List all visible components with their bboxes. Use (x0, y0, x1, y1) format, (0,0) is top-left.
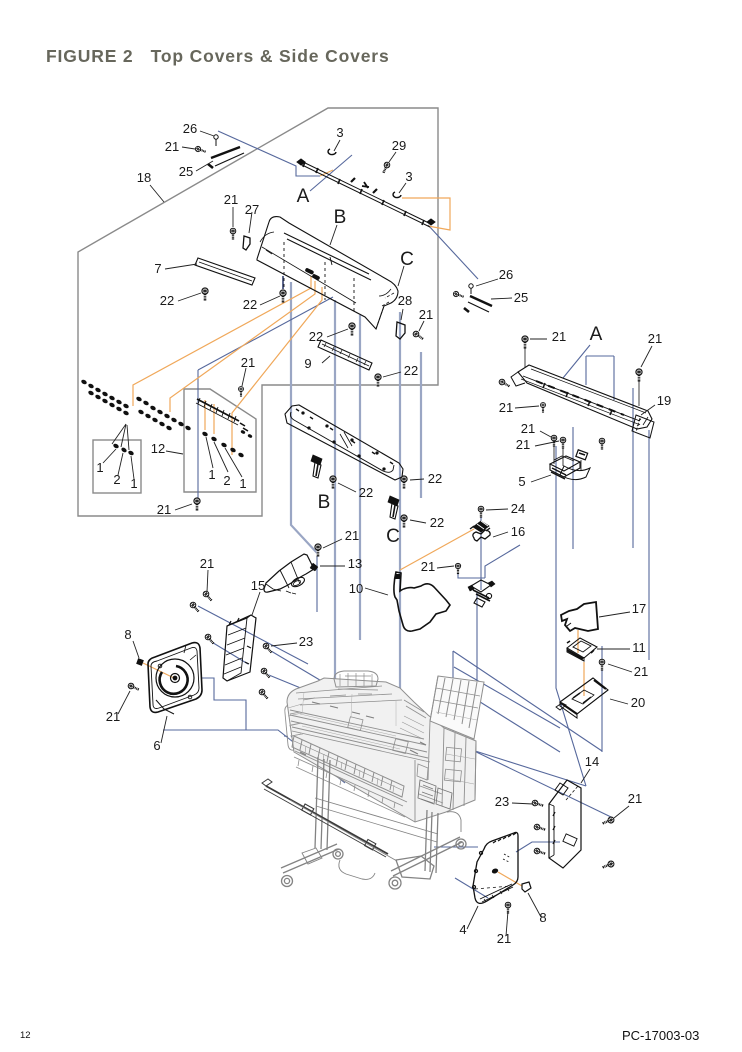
svg-text:2: 2 (223, 473, 230, 488)
svg-text:23: 23 (299, 634, 313, 649)
svg-text:A: A (590, 324, 603, 345)
svg-text:3: 3 (336, 125, 343, 140)
svg-text:21: 21 (224, 192, 238, 207)
svg-text:29: 29 (392, 138, 406, 153)
svg-text:9: 9 (304, 356, 311, 371)
svg-text:21: 21 (165, 139, 179, 154)
svg-text:24: 24 (511, 501, 525, 516)
svg-text:1: 1 (239, 476, 246, 491)
svg-text:17: 17 (632, 601, 646, 616)
svg-text:21: 21 (521, 421, 535, 436)
svg-text:18: 18 (137, 170, 151, 185)
svg-text:1: 1 (130, 476, 137, 491)
svg-text:21: 21 (345, 528, 359, 543)
svg-text:20: 20 (631, 695, 645, 710)
svg-text:13: 13 (348, 556, 362, 571)
svg-text:B: B (334, 207, 347, 228)
svg-text:25: 25 (179, 164, 193, 179)
svg-text:21: 21 (200, 556, 214, 571)
svg-text:22: 22 (428, 471, 442, 486)
svg-text:6: 6 (153, 738, 160, 753)
svg-text:2: 2 (113, 472, 120, 487)
svg-text:10: 10 (349, 581, 363, 596)
svg-text:A: A (297, 186, 310, 207)
svg-text:21: 21 (552, 329, 566, 344)
svg-text:1: 1 (208, 467, 215, 482)
svg-text:21: 21 (628, 791, 642, 806)
svg-text:8: 8 (539, 910, 546, 925)
svg-text:5: 5 (518, 474, 525, 489)
svg-text:C: C (386, 526, 400, 547)
svg-text:21: 21 (516, 437, 530, 452)
svg-text:22: 22 (309, 329, 323, 344)
svg-text:7: 7 (154, 261, 161, 276)
svg-text:12: 12 (151, 441, 165, 456)
svg-text:21: 21 (497, 931, 511, 946)
svg-text:22: 22 (430, 515, 444, 530)
svg-text:1: 1 (96, 460, 103, 475)
svg-text:21: 21 (419, 307, 433, 322)
svg-text:21: 21 (157, 502, 171, 517)
svg-text:B: B (318, 492, 331, 513)
svg-text:28: 28 (398, 293, 412, 308)
svg-text:16: 16 (511, 524, 525, 539)
svg-text:21: 21 (421, 559, 435, 574)
svg-text:25: 25 (514, 290, 528, 305)
svg-text:22: 22 (404, 363, 418, 378)
svg-text:21: 21 (106, 709, 120, 724)
svg-text:19: 19 (657, 393, 671, 408)
svg-text:26: 26 (183, 121, 197, 136)
svg-text:14: 14 (585, 754, 599, 769)
svg-text:21: 21 (499, 400, 513, 415)
svg-text:27: 27 (245, 202, 259, 217)
svg-text:22: 22 (243, 297, 257, 312)
svg-text:8: 8 (124, 627, 131, 642)
svg-text:C: C (400, 249, 414, 270)
svg-text:3: 3 (405, 169, 412, 184)
svg-text:21: 21 (648, 331, 662, 346)
svg-text:26: 26 (499, 267, 513, 282)
svg-text:21: 21 (241, 355, 255, 370)
svg-text:4: 4 (459, 922, 466, 937)
svg-text:21: 21 (634, 664, 648, 679)
svg-text:23: 23 (495, 794, 509, 809)
svg-text:22: 22 (359, 485, 373, 500)
svg-text:11: 11 (632, 640, 646, 655)
svg-text:15: 15 (251, 578, 265, 593)
svg-text:22: 22 (160, 293, 174, 308)
